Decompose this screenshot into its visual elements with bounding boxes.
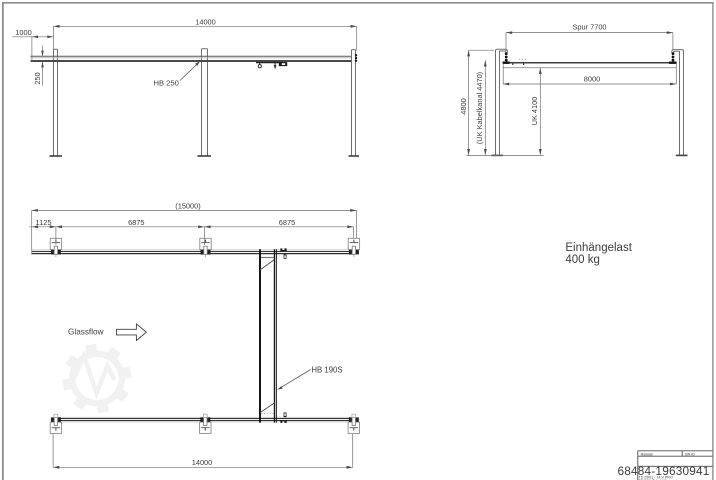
svg-text:HB 250: HB 250 (154, 79, 179, 88)
svg-text:8000: 8000 (584, 75, 600, 84)
svg-text:4800: 4800 (459, 98, 468, 114)
svg-text:14000: 14000 (195, 17, 216, 26)
svg-text:1125: 1125 (36, 218, 52, 227)
svg-text:250: 250 (33, 72, 42, 84)
svg-text:14000: 14000 (192, 458, 213, 467)
svg-text:HB 190S: HB 190S (311, 365, 342, 374)
svg-text:400 kg: 400 kg (565, 254, 600, 266)
svg-text:6875: 6875 (279, 218, 295, 227)
svg-text:Glassflow: Glassflow (68, 328, 104, 337)
svg-text:DIN A3: DIN A3 (685, 452, 695, 456)
svg-text:UK 4100: UK 4100 (530, 97, 539, 126)
svg-text:(15000): (15000) (175, 201, 200, 210)
svg-text:Einhängelast: Einhängelast (565, 242, 632, 254)
svg-text:6875: 6875 (128, 218, 144, 227)
svg-text:1000: 1000 (15, 28, 31, 37)
svg-text:(UK Kabelkanal 4470): (UK Kabelkanal 4470) (475, 72, 484, 144)
svg-text:Maßstab: Maßstab (641, 452, 654, 456)
svg-text:Spur 7700: Spur 7700 (572, 22, 606, 31)
